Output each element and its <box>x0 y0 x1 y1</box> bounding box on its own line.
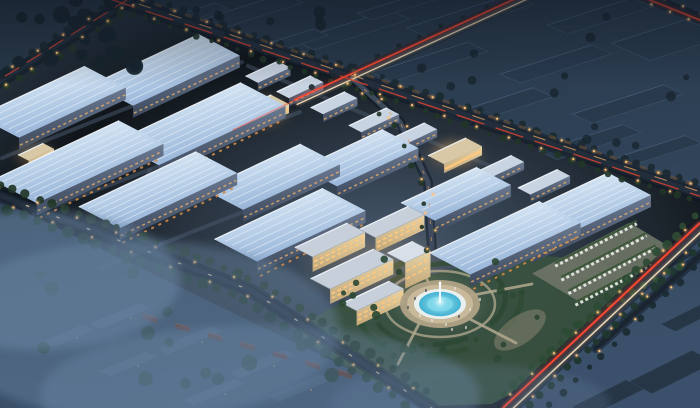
fountain-plaza <box>400 280 480 328</box>
outbuilding <box>422 137 488 173</box>
vignette <box>0 0 700 86</box>
aerial-rendering-frame <box>0 0 700 408</box>
industrial-park-rendering <box>0 0 700 408</box>
